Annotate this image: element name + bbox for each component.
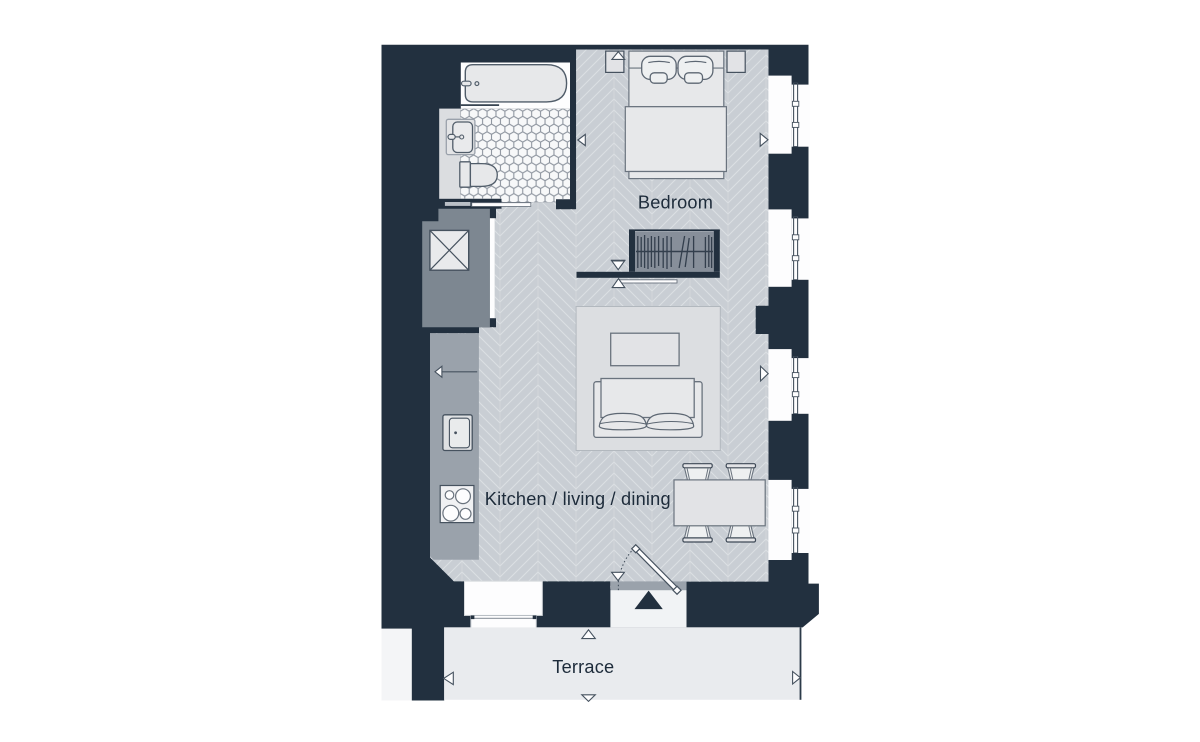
svg-text:Terrace: Terrace — [552, 657, 614, 677]
svg-text:Kitchen / living / dining: Kitchen / living / dining — [485, 489, 671, 509]
svg-text:Bedroom: Bedroom — [638, 193, 713, 213]
